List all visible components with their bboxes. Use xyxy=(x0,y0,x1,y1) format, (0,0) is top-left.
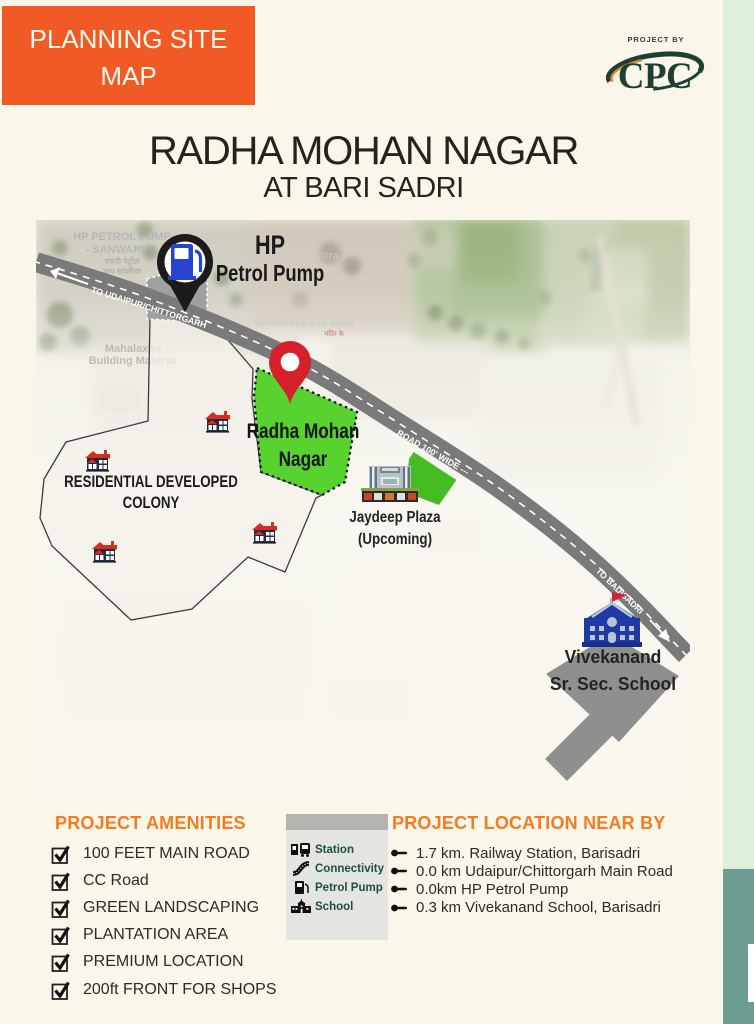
svg-text:- SANWARIYA: - SANWARIYA xyxy=(86,244,159,256)
svg-text:मंदिर के: मंदिर के xyxy=(324,329,345,338)
svg-text:Sanwaliya Ful Mala: Sanwaliya Ful Mala xyxy=(254,317,355,329)
svg-text:CPC: CPC xyxy=(618,56,693,97)
svg-text:PROJECT BY: PROJECT BY xyxy=(628,35,685,44)
svg-text:एचपी पेट्रोल: एचपी पेट्रोल xyxy=(104,256,140,266)
